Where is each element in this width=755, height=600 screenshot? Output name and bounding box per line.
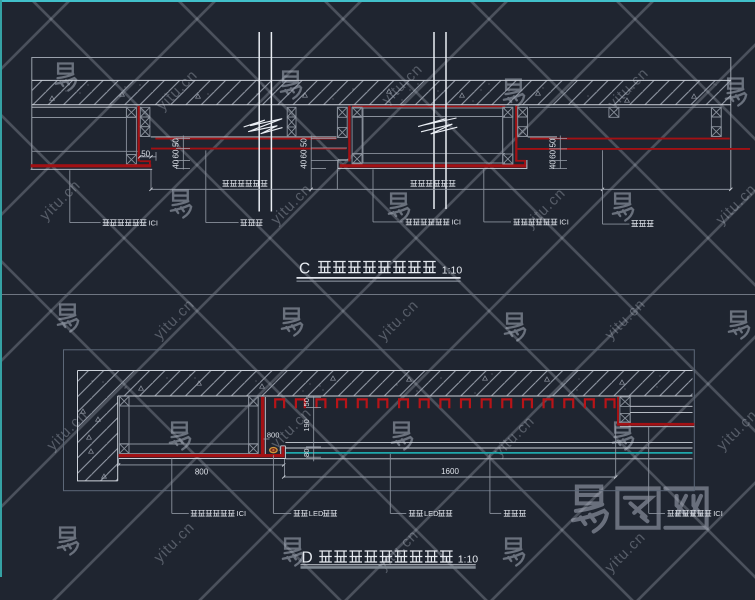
- svg-text:LED: LED: [424, 509, 439, 518]
- svg-text:50: 50: [302, 398, 311, 406]
- svg-text:LED: LED: [309, 509, 324, 518]
- svg-text:50: 50: [141, 150, 150, 159]
- svg-text:190: 190: [302, 419, 311, 432]
- svg-text:ICI: ICI: [713, 509, 723, 518]
- svg-text:ICI: ICI: [237, 509, 247, 518]
- svg-text:50: 50: [548, 138, 557, 147]
- svg-text:ICI: ICI: [559, 218, 569, 227]
- svg-text:40: 40: [172, 159, 181, 168]
- svg-text:C: C: [299, 260, 310, 277]
- svg-text:40: 40: [299, 159, 308, 168]
- svg-text:50: 50: [172, 138, 181, 147]
- svg-text:ICI: ICI: [148, 218, 158, 227]
- svg-text:ICI: ICI: [451, 218, 461, 227]
- svg-text:800: 800: [195, 468, 209, 477]
- svg-text:80: 80: [302, 449, 311, 457]
- svg-text:1600: 1600: [441, 467, 459, 476]
- svg-text:1:10: 1:10: [442, 264, 463, 276]
- svg-text:60: 60: [172, 149, 181, 158]
- svg-text:60: 60: [299, 149, 308, 158]
- svg-text:40: 40: [548, 160, 557, 169]
- svg-text:1:10: 1:10: [458, 553, 479, 565]
- svg-text:800: 800: [267, 430, 280, 439]
- svg-text:50: 50: [299, 138, 308, 147]
- svg-text:60: 60: [548, 149, 557, 158]
- svg-text:D: D: [302, 549, 313, 566]
